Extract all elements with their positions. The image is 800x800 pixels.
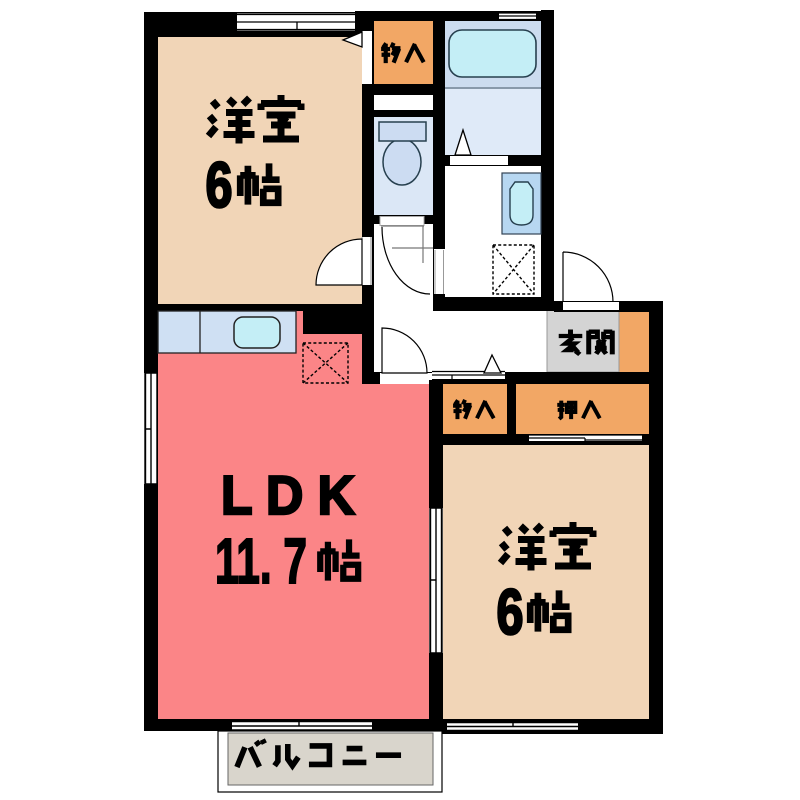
- svg-text:6: 6: [497, 576, 524, 648]
- svg-text:11. 7: 11. 7: [215, 525, 307, 597]
- svg-text:L D K: L D K: [221, 464, 355, 526]
- svg-text:6: 6: [206, 149, 233, 221]
